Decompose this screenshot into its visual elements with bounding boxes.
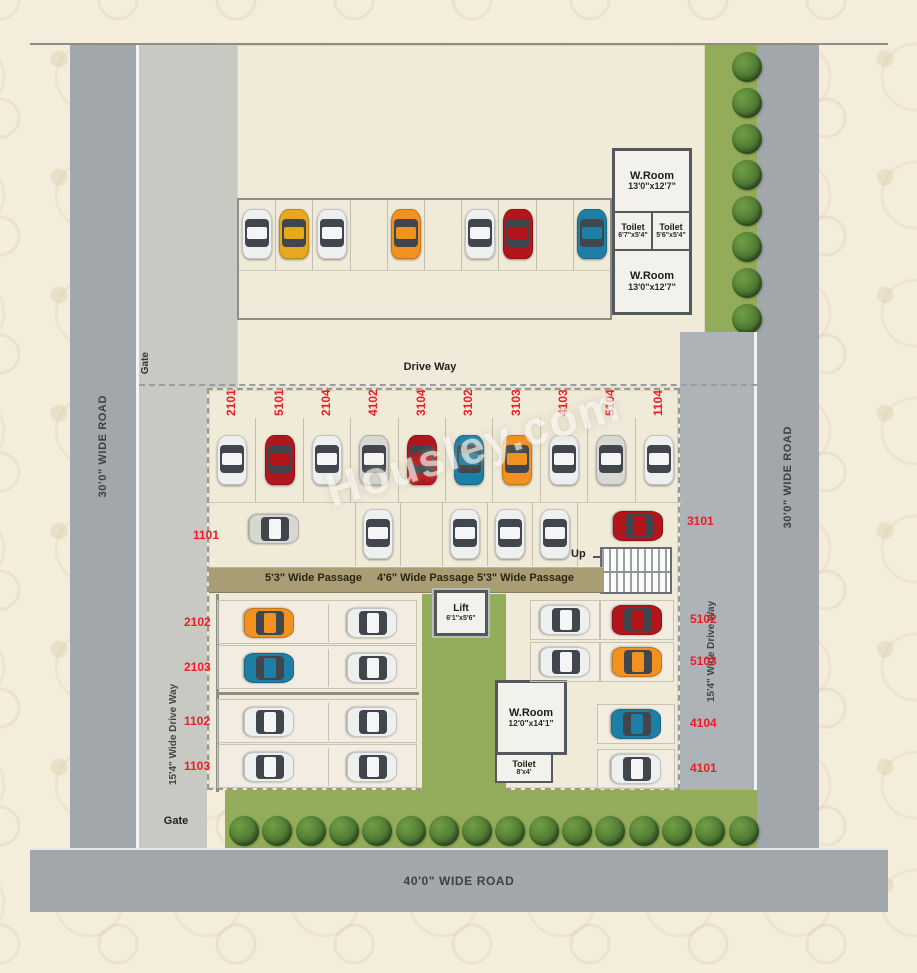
gate-top-label: Gate <box>140 352 151 398</box>
car-white-icon <box>488 502 532 566</box>
car-white-icon <box>226 703 312 741</box>
tree-icon <box>529 816 559 846</box>
parking-slot <box>425 200 462 270</box>
room-toilet-a-size: 6'7"x5'4" <box>618 232 647 240</box>
car-orange-icon <box>389 206 423 262</box>
car-white-icon <box>329 604 415 642</box>
car-orange-icon <box>226 604 312 642</box>
parking-row-4101: 4101 <box>524 749 694 789</box>
car-gold-icon <box>277 206 311 262</box>
parking-slot <box>313 200 350 270</box>
tree-icon <box>562 816 592 846</box>
car-white-icon <box>531 601 599 639</box>
tree-icon <box>262 816 292 846</box>
top-parking-slots <box>239 200 610 271</box>
tree-icon <box>495 816 525 846</box>
parking-slot <box>462 200 499 270</box>
parking-slot <box>442 502 488 566</box>
stall-label-5103: 5103 <box>690 654 717 668</box>
tree-icon <box>462 816 492 846</box>
tree-icon <box>732 196 762 226</box>
road-right-label: 30'0" WIDE ROAD <box>782 426 794 528</box>
site-plan: 30'0" WIDE ROAD 30'0" WIDE ROAD 40'0" WI… <box>0 0 917 973</box>
parking-row-5103: 5103 <box>524 642 694 682</box>
car-white-icon <box>443 502 487 566</box>
room-toilet-a: Toilet 6'7"x5'4" <box>615 213 653 250</box>
room-wroom-a: W.Room 13'0"x12'7" <box>615 151 689 213</box>
car-red-icon <box>601 601 673 639</box>
car-white-icon <box>329 649 415 687</box>
passage-label-1: 5'3" Wide Passage <box>265 572 362 584</box>
road-bottom-label: 40'0" WIDE ROAD <box>404 874 515 888</box>
road-right: 30'0" WIDE ROAD <box>757 45 819 910</box>
room-toilet-a-name: Toilet <box>621 222 644 232</box>
room-toilet-b-name: Toilet <box>659 222 682 232</box>
tree-icon <box>362 816 392 846</box>
tree-icon <box>396 816 426 846</box>
stall-label-1102: 1102 <box>184 714 210 728</box>
top-toilets-row: Toilet 6'7"x5'4" Toilet 5'6"x5'4" <box>615 213 689 252</box>
stall-label-3101: 3101 <box>687 514 714 528</box>
passage-label-2: 4'6" Wide Passage <box>377 572 474 584</box>
row2-middle-cars <box>355 502 577 566</box>
tree-icon <box>662 816 692 846</box>
car-white-icon <box>315 206 349 262</box>
tree-icon <box>296 816 326 846</box>
parking-slot <box>487 502 533 566</box>
tree-icon <box>732 52 762 82</box>
lower-right-rows: 5102510341044101 <box>524 594 694 792</box>
gate-bottom-label: Gate <box>146 815 206 827</box>
car-red-icon <box>501 206 535 262</box>
stall-label-2101: 2101 <box>224 371 238 416</box>
inner-drive-right-label: 15'4" Wide Drive Way <box>706 572 717 702</box>
passage-strip: 5'3" Wide Passage 4'6" Wide Passage 5'3"… <box>209 567 603 593</box>
tree-icon <box>732 124 762 154</box>
tree-icon <box>732 88 762 118</box>
room-wroom-a-size: 13'0"x12'7" <box>628 182 676 192</box>
stairs <box>600 547 672 594</box>
lift-room: Lift 6'1"x5'6" <box>434 590 488 636</box>
lift-size: 6'1"x5'6" <box>446 615 475 623</box>
tree-icon <box>729 816 759 846</box>
car-white-icon <box>531 643 599 681</box>
top-rooms-block: W.Room 13'0"x12'7" Toilet 6'7"x5'4" Toil… <box>612 148 692 315</box>
road-bottom: 40'0" WIDE ROAD <box>30 848 888 912</box>
car-white-icon <box>463 206 497 262</box>
room-toilet-b: Toilet 5'6"x5'4" <box>653 213 689 250</box>
car-white-icon <box>598 750 674 788</box>
parking-slot <box>351 200 388 270</box>
car-blue-icon <box>575 206 609 262</box>
room-wroom-b: W.Room 13'0"x12'7" <box>615 251 689 312</box>
parking-slot <box>499 200 536 270</box>
stall-label-2102: 2102 <box>184 615 211 629</box>
parking-row-4104: 4104 <box>524 704 694 744</box>
car-white-icon <box>209 418 255 502</box>
parking-slot <box>574 200 610 270</box>
stall-label-2103: 2103 <box>184 660 211 674</box>
room-wroom-b-size: 13'0"x12'7" <box>628 283 676 293</box>
stall-label-1103: 1103 <box>184 759 210 773</box>
room-toilet-b-size: 5'6"x5'4" <box>656 232 685 240</box>
car-white-icon <box>329 703 415 741</box>
tree-icon <box>732 160 762 190</box>
parking-row-2103: 2103 <box>217 645 417 689</box>
tree-icon <box>732 232 762 262</box>
car-blue-icon <box>598 705 674 743</box>
stall-label-4104: 4104 <box>690 716 717 730</box>
trees-bottom <box>225 790 757 848</box>
road-left-label: 30'0" WIDE ROAD <box>97 395 109 497</box>
road-left: 30'0" WIDE ROAD <box>70 45 139 848</box>
parking-row-1103: 1103 <box>217 744 417 788</box>
stall-label-3102: 3102 <box>461 371 475 416</box>
car-slot-3101 <box>602 505 674 547</box>
stall-label-2104: 2104 <box>319 371 333 416</box>
parking-slot <box>388 200 425 270</box>
stall-label-1101: 1101 <box>193 528 219 542</box>
tree-icon <box>429 816 459 846</box>
stall-label-5101: 5101 <box>272 371 286 416</box>
parking-row-1102: 1102 <box>217 699 417 743</box>
car-white-icon <box>226 748 312 786</box>
car-white-icon <box>356 502 400 566</box>
car-red-icon <box>602 505 674 547</box>
inner-lane-left-upper <box>139 45 237 388</box>
tree-icon <box>732 304 762 334</box>
car-white-icon <box>329 748 415 786</box>
car-white-icon <box>240 206 274 262</box>
tree-icon <box>595 816 625 846</box>
parking-row-2102: 2102 <box>217 600 417 644</box>
tree-icon <box>329 816 359 846</box>
parking-slot <box>537 200 574 270</box>
passage-label-3: 5'3" Wide Passage <box>477 572 574 584</box>
car-white-icon <box>636 418 682 502</box>
parking-slot-1104: 1104 <box>636 418 682 502</box>
stall-label-3104: 3104 <box>414 371 428 416</box>
top-parking-block <box>237 198 612 320</box>
parking-slot <box>239 200 276 270</box>
parking-row-5102: 5102 <box>524 600 694 640</box>
trees-right <box>732 45 762 335</box>
tree-icon <box>695 816 725 846</box>
up-label: Up <box>571 548 586 560</box>
stall-label-4102: 4102 <box>366 371 380 416</box>
stall-label-4101: 4101 <box>690 761 717 775</box>
parking-slot <box>355 502 401 566</box>
inner-drive-left-label: 15'4" Wide Drive Way <box>168 645 179 785</box>
car-orange-icon <box>601 643 673 681</box>
parking-slot <box>276 200 313 270</box>
lift-name: Lift <box>453 603 469 615</box>
tree-icon <box>229 816 259 846</box>
tree-icon <box>629 816 659 846</box>
car-blue-icon <box>226 649 312 687</box>
parking-slot-2101: 2101 <box>209 418 256 502</box>
lower-left-rows: 2102210311021103 <box>217 600 419 792</box>
tree-icon <box>732 268 762 298</box>
stall-label-5102: 5102 <box>690 612 717 626</box>
